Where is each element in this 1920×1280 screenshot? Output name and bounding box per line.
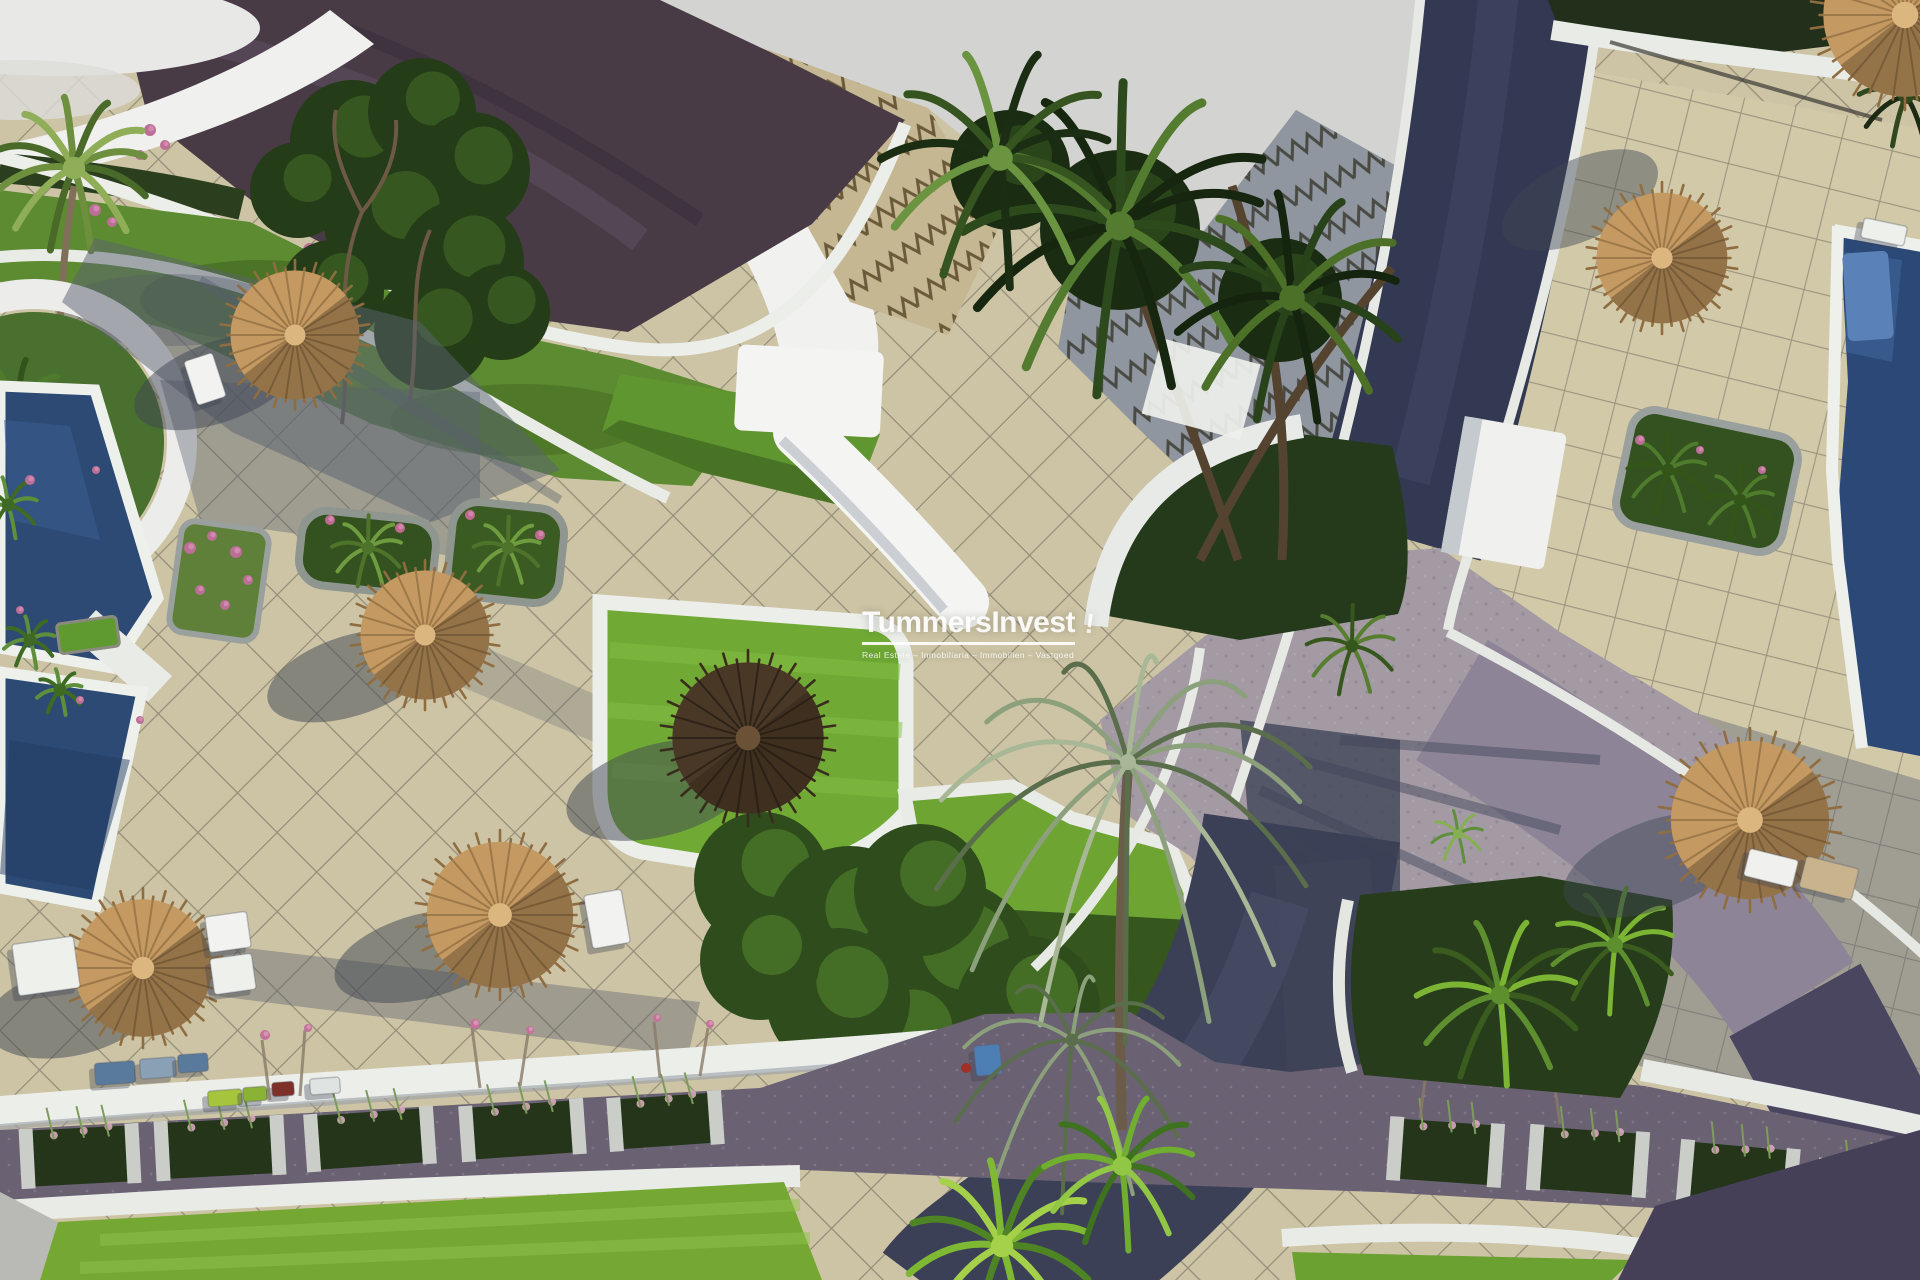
- roadside-fronds: [1346, 640, 1359, 653]
- street-color-bits: [272, 1081, 295, 1097]
- plaza-bed-flowers: [1761, 467, 1765, 471]
- street-planters: [1536, 1127, 1640, 1196]
- shrub-mass: [900, 841, 966, 907]
- street-planters: [1396, 1119, 1495, 1185]
- pink-bed-flowers: [211, 532, 216, 537]
- fan-palm: [1607, 937, 1623, 953]
- pool-grasses: [54, 684, 67, 697]
- street-color-bits: [139, 1057, 176, 1079]
- street-color-bits: [309, 1077, 340, 1095]
- pool-flowers: [95, 467, 99, 471]
- shrub-mass: [742, 915, 802, 975]
- dark-umbrella: [736, 726, 761, 751]
- twig-flowers: [709, 1021, 713, 1025]
- street-planters: [164, 1117, 277, 1179]
- sun-loungers: [205, 911, 252, 952]
- street-color-bits: [177, 1053, 208, 1073]
- street-color-bits: [243, 1086, 268, 1102]
- street-color-bits: [94, 1061, 135, 1086]
- watermark: TummersInvest ! Real Estate – Inmobiliar…: [862, 608, 1094, 660]
- watermark-title: TummersInvest: [862, 608, 1075, 645]
- pool-flowers: [139, 717, 143, 721]
- palm-canopy: [1120, 83, 1123, 226]
- fan-palm: [1490, 985, 1509, 1004]
- street-planters: [616, 1093, 714, 1150]
- thatch-umbrella: [1651, 247, 1672, 268]
- resort-aerial-render: TummersInvest ! Real Estate – Inmobiliar…: [0, 0, 1920, 1280]
- street-planters: [468, 1100, 576, 1159]
- red-dot: [961, 1063, 971, 1073]
- flower-cluster: [111, 218, 116, 223]
- bed-flowers: [329, 516, 334, 521]
- watermark-subtitle: Real Estate – Inmobiliaria – Immobilien …: [862, 650, 1094, 660]
- feather-palm: [1120, 754, 1136, 770]
- bed-palm: [362, 542, 375, 555]
- plaza-grasses: [1453, 829, 1463, 839]
- sun-loungers: [12, 936, 81, 996]
- pool-flowers: [29, 476, 34, 481]
- twig-flowers: [529, 1027, 533, 1031]
- thatch-umbrella: [285, 325, 306, 346]
- palm-canopy: [1106, 212, 1135, 241]
- pool-flowers: [19, 607, 23, 611]
- thatch-umbrella: [1737, 807, 1763, 833]
- pool-lounger-blue: [1842, 251, 1894, 342]
- thatch-umbrella: [488, 903, 512, 927]
- flower-cluster: [148, 126, 154, 132]
- watermark-mark: !: [1083, 608, 1096, 641]
- big-bush: [488, 276, 536, 324]
- pool-grasses: [24, 634, 37, 647]
- palm-tree: [63, 157, 85, 179]
- pink-bed-flowers: [247, 576, 252, 581]
- palm-canopy: [987, 145, 1013, 171]
- big-bush: [284, 154, 332, 202]
- street-planters: [29, 1125, 132, 1186]
- bed-flowers: [539, 531, 544, 536]
- bed-flowers: [469, 511, 474, 516]
- pool-lane-green: [56, 616, 120, 654]
- pool-flowers: [79, 697, 83, 701]
- feather-palm: [1125, 762, 1128, 1043]
- plaza-bed-palm: [1734, 494, 1747, 507]
- plaza-bed-palm: [1662, 464, 1675, 477]
- twig-flowers: [264, 1031, 269, 1036]
- fan-palm-bottom: [991, 1235, 1013, 1257]
- plaza-bed-flowers: [1639, 436, 1644, 441]
- plaza-bed-flowers: [1699, 447, 1703, 451]
- flower-cluster: [164, 141, 169, 146]
- bed-palm: [502, 542, 515, 555]
- pink-bed-flowers: [199, 586, 204, 591]
- pink-bed-flowers: [188, 544, 194, 550]
- pink-bed-flowers: [234, 548, 240, 554]
- street-planters: [313, 1108, 426, 1170]
- twig-flowers: [474, 1020, 479, 1025]
- twig-flowers: [656, 1015, 660, 1019]
- big-bush: [455, 127, 513, 185]
- shrub-mass: [816, 946, 888, 1018]
- thatch-umbrella: [1892, 2, 1919, 29]
- fan-palm-bottom: [1112, 1156, 1131, 1175]
- pink-bed: [168, 519, 271, 642]
- palm-canopy: [1279, 285, 1305, 311]
- pool-grasses: [2, 499, 15, 512]
- pink-bed-flowers: [224, 601, 229, 606]
- twig-flowers: [307, 1025, 311, 1029]
- thatch-umbrella: [132, 957, 154, 979]
- feather-palm: [1066, 1034, 1079, 1047]
- flower-cluster: [93, 206, 99, 212]
- bed-flowers: [399, 524, 404, 529]
- thatch-umbrella: [415, 625, 436, 646]
- sun-loungers: [210, 953, 257, 994]
